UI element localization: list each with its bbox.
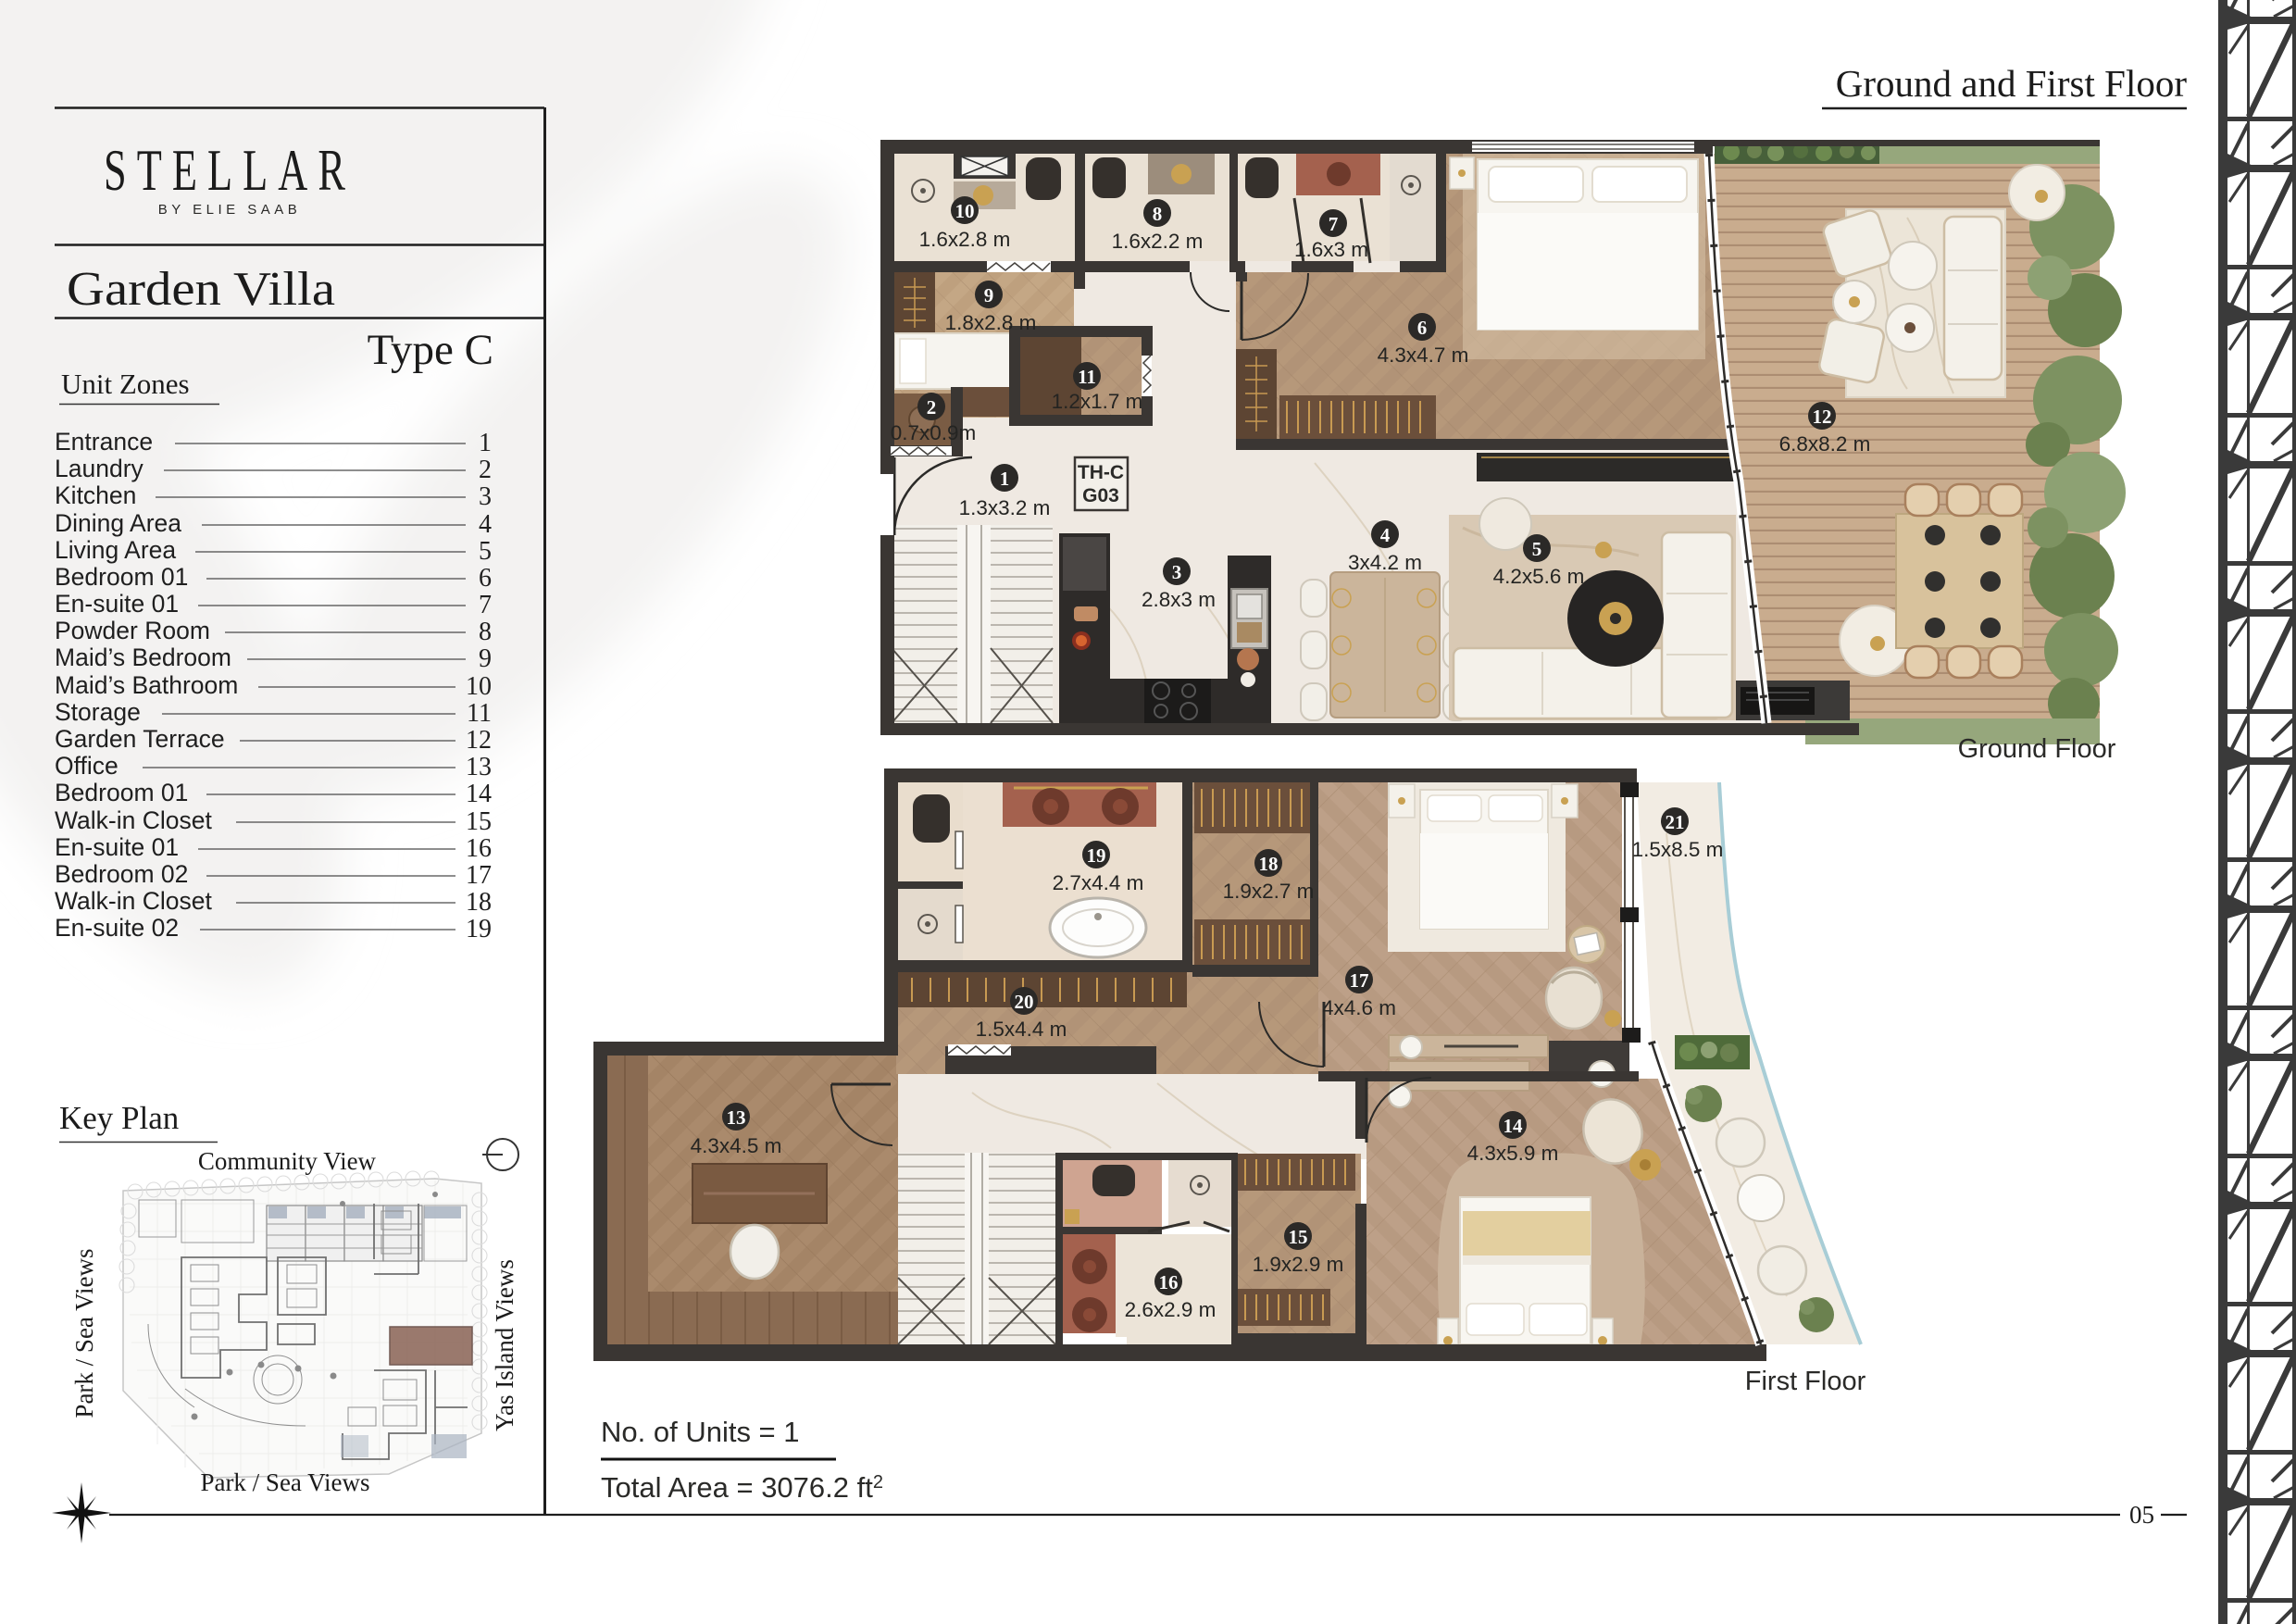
svg-text:En-suite 01: En-suite 01 xyxy=(55,833,179,861)
svg-text:2.6x2.9 m: 2.6x2.9 m xyxy=(1125,1298,1217,1321)
svg-text:Key Plan: Key Plan xyxy=(59,1100,179,1136)
svg-text:4x4.6 m: 4x4.6 m xyxy=(1322,996,1396,1019)
svg-text:4.3x4.7 m: 4.3x4.7 m xyxy=(1378,344,1469,367)
svg-text:6.8x8.2 m: 6.8x8.2 m xyxy=(1779,432,1871,456)
svg-text:1.6x3 m: 1.6x3 m xyxy=(1294,238,1368,261)
svg-text:Dining Area: Dining Area xyxy=(55,509,181,537)
svg-text:2.7x4.4 m: 2.7x4.4 m xyxy=(1053,871,1144,894)
svg-text:2: 2 xyxy=(479,456,492,484)
svg-text:14: 14 xyxy=(1504,1115,1524,1137)
svg-text:Park / Sea Views: Park / Sea Views xyxy=(200,1468,369,1496)
svg-text:Storage: Storage xyxy=(55,698,141,726)
svg-text:17: 17 xyxy=(1350,969,1369,992)
svg-text:7: 7 xyxy=(1329,213,1339,235)
svg-text:STELLAR: STELLAR xyxy=(104,137,356,203)
svg-text:12: 12 xyxy=(1813,406,1832,428)
svg-text:G03: G03 xyxy=(1082,485,1119,506)
svg-text:1: 1 xyxy=(479,429,492,457)
svg-text:4.2x5.6 m: 4.2x5.6 m xyxy=(1493,565,1585,588)
svg-text:6: 6 xyxy=(1417,317,1428,339)
svg-text:10: 10 xyxy=(955,200,975,222)
svg-text:No. of Units = 1: No. of Units = 1 xyxy=(601,1416,800,1448)
svg-text:Total Area = 3076.2 ft2: Total Area = 3076.2 ft2 xyxy=(601,1471,883,1504)
svg-text:Maid’s Bedroom: Maid’s Bedroom xyxy=(55,643,231,671)
svg-text:10: 10 xyxy=(466,672,492,701)
svg-text:5: 5 xyxy=(1532,538,1542,560)
svg-text:18: 18 xyxy=(1259,853,1279,875)
svg-text:05: 05 xyxy=(2129,1501,2154,1529)
svg-text:En-suite 02: En-suite 02 xyxy=(55,914,179,942)
svg-text:Ground and First Floor: Ground and First Floor xyxy=(1836,62,2188,105)
svg-text:1.2x1.7 m: 1.2x1.7 m xyxy=(1052,390,1143,413)
svg-text:Entrance: Entrance xyxy=(55,428,153,456)
svg-text:0.7x0.9m: 0.7x0.9m xyxy=(891,421,977,444)
svg-text:14: 14 xyxy=(466,780,492,808)
svg-text:Maid’s Bathroom: Maid’s Bathroom xyxy=(55,671,238,699)
svg-text:1.5x4.4 m: 1.5x4.4 m xyxy=(976,1018,1067,1041)
svg-text:1.8x2.8 m: 1.8x2.8 m xyxy=(945,311,1037,334)
svg-text:Unit Zones: Unit Zones xyxy=(61,368,190,400)
svg-text:Laundry: Laundry xyxy=(55,455,144,482)
svg-text:12: 12 xyxy=(466,726,492,755)
svg-text:Bedroom 01: Bedroom 01 xyxy=(55,779,188,806)
svg-text:Yas Island Views: Yas Island Views xyxy=(491,1259,518,1431)
svg-text:19: 19 xyxy=(1087,844,1106,867)
svg-text:Park / Sea Views: Park / Sea Views xyxy=(70,1248,98,1418)
svg-text:4.3x4.5 m: 4.3x4.5 m xyxy=(691,1134,782,1157)
svg-text:9: 9 xyxy=(479,644,492,673)
svg-text:15: 15 xyxy=(1289,1226,1308,1248)
svg-text:Walk-in Closet: Walk-in Closet xyxy=(55,887,212,915)
svg-text:8: 8 xyxy=(1153,203,1163,225)
svg-text:3: 3 xyxy=(1172,561,1182,583)
svg-text:1.6x2.2 m: 1.6x2.2 m xyxy=(1112,230,1204,253)
svg-text:1.5x8.5 m: 1.5x8.5 m xyxy=(1632,838,1724,861)
svg-text:1: 1 xyxy=(1000,468,1010,490)
svg-text:18: 18 xyxy=(466,888,492,917)
svg-text:8: 8 xyxy=(479,618,492,646)
svg-text:En-suite 01: En-suite 01 xyxy=(55,590,179,618)
svg-text:5: 5 xyxy=(479,537,492,566)
svg-text:Living Area: Living Area xyxy=(55,536,176,564)
svg-text:Garden Villa: Garden Villa xyxy=(67,263,335,316)
svg-text:Community View: Community View xyxy=(198,1147,377,1175)
svg-text:Type C: Type C xyxy=(368,326,493,374)
svg-text:13: 13 xyxy=(727,1106,746,1129)
svg-text:9: 9 xyxy=(984,284,994,306)
svg-text:1.9x2.7 m: 1.9x2.7 m xyxy=(1223,880,1315,903)
svg-text:11: 11 xyxy=(1078,366,1096,388)
svg-text:21: 21 xyxy=(1666,811,1685,833)
svg-text:4.3x5.9 m: 4.3x5.9 m xyxy=(1467,1142,1559,1165)
svg-text:1.9x2.9 m: 1.9x2.9 m xyxy=(1253,1253,1344,1276)
svg-text:1.3x3.2 m: 1.3x3.2 m xyxy=(959,496,1051,519)
svg-text:Bedroom 01: Bedroom 01 xyxy=(55,563,188,591)
svg-text:19: 19 xyxy=(466,915,492,943)
svg-text:16: 16 xyxy=(1159,1271,1179,1293)
svg-text:2: 2 xyxy=(927,396,937,418)
svg-text:First Floor: First Floor xyxy=(1745,1367,1866,1396)
svg-text:Ground Floor: Ground Floor xyxy=(1958,734,2116,764)
svg-text:17: 17 xyxy=(466,861,492,890)
svg-text:TH-C: TH-C xyxy=(1078,462,1124,483)
svg-text:3: 3 xyxy=(479,482,492,511)
svg-text:4: 4 xyxy=(479,510,492,539)
svg-text:2.8x3 m: 2.8x3 m xyxy=(1142,588,1216,611)
svg-text:7: 7 xyxy=(479,591,492,619)
svg-text:11: 11 xyxy=(467,699,492,728)
svg-text:3x4.2 m: 3x4.2 m xyxy=(1348,551,1422,574)
svg-text:16: 16 xyxy=(466,834,492,863)
svg-text:Garden Terrace: Garden Terrace xyxy=(55,725,225,753)
svg-text:Bedroom 02: Bedroom 02 xyxy=(55,860,188,888)
svg-text:6: 6 xyxy=(479,564,492,593)
svg-text:13: 13 xyxy=(466,753,492,781)
svg-text:Walk-in Closet: Walk-in Closet xyxy=(55,806,212,834)
svg-text:Powder Room: Powder Room xyxy=(55,617,210,644)
svg-text:15: 15 xyxy=(466,807,492,836)
svg-text:1.6x2.8 m: 1.6x2.8 m xyxy=(919,228,1011,251)
svg-text:Office: Office xyxy=(55,752,119,780)
svg-text:20: 20 xyxy=(1015,991,1034,1013)
svg-text:Kitchen: Kitchen xyxy=(55,481,136,509)
svg-text:BY ELIE SAAB: BY ELIE SAAB xyxy=(158,202,302,218)
svg-text:4: 4 xyxy=(1380,524,1391,546)
